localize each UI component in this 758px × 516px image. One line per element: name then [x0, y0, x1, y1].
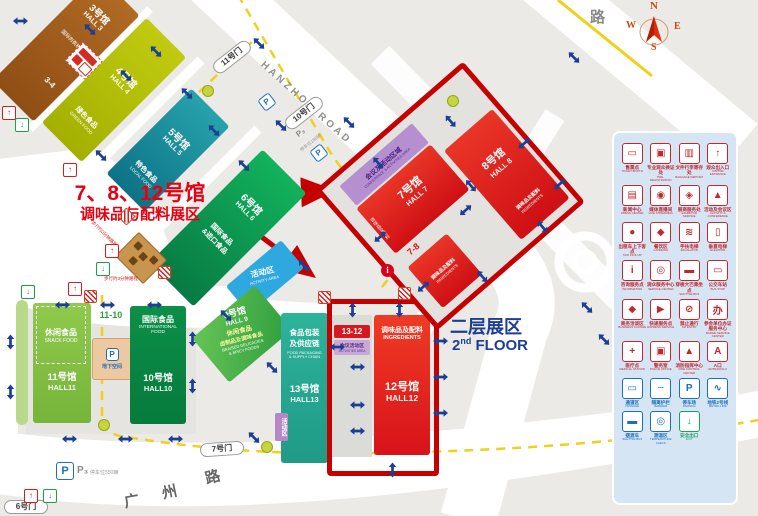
legend-glyph-icon: ◆: [650, 222, 671, 243]
legend-glyph-icon: ●: [622, 222, 643, 243]
legend-item-20: 办参会单位办证服务中心BADGE SERVICE CENTER: [704, 299, 733, 338]
legend-glyph-icon: ▭: [622, 143, 643, 164]
entrance-arrow-icon: [330, 338, 345, 346]
legend-glyph-icon: ▣: [650, 341, 671, 362]
escalator-icon: [318, 291, 331, 304]
legend-item-10: ◆餐饮区CATERING: [647, 222, 676, 258]
entrance-arrow-icon: [350, 422, 365, 430]
parking-p3-bottom: P₃: [77, 465, 88, 476]
hall-11-sub-en: SNACK FOOD: [44, 338, 77, 344]
parking-p-icon: P: [106, 348, 119, 361]
legend-item-11: ≋手扶电梯ESCALATOR: [675, 222, 704, 258]
entrance-arrow-icon: [354, 303, 362, 318]
entrance-arrow-icon: [369, 225, 386, 241]
entrance-arrow-icon: [350, 358, 365, 366]
entrance-arrow-icon: [168, 430, 183, 438]
legend-glyph-icon: ≋: [679, 222, 700, 243]
entrance-arrow-icon: [62, 430, 77, 438]
legend-item-12: ▯垂直电梯ELEVATOR: [704, 222, 733, 258]
walk-note-2: 步行约3分钟路程: [104, 276, 138, 282]
legend-glyph-icon: ↓: [679, 411, 700, 432]
tree-strip: [16, 300, 28, 425]
exit-marker-icon: ↑: [24, 489, 38, 503]
legend-item-14: ◎观众服务中心SERVICE CENTER: [647, 260, 676, 296]
floor-note-en: 2nd FLOOR: [452, 336, 528, 354]
legend-glyph-icon: ▣: [650, 143, 671, 164]
link-11-10: 11-10: [94, 307, 128, 323]
entrance-arrow-icon: [433, 404, 448, 412]
entrance-arrow-icon: [401, 303, 409, 318]
legend-item-21: +医疗点MEDICAL STATION: [618, 341, 647, 375]
entrance-arrow-icon: [12, 385, 20, 400]
entrance-marker-icon: ↓: [43, 489, 57, 503]
entrance-arrow-icon: [194, 332, 202, 347]
legend-glyph-icon: ▶: [650, 299, 671, 320]
legend-item-19: ⊘禁止通行NO ENTRY: [675, 299, 704, 338]
legend-glyph-icon: ▲: [679, 341, 700, 362]
hall-11-hallno: HALL11: [48, 383, 76, 392]
exit-marker-icon: ↑: [68, 282, 82, 296]
hall-10-sub: 国际食品: [142, 314, 174, 325]
legend-glyph-icon: 办: [707, 299, 728, 320]
legend-item-5: ▤新闻中心PRESS CENTER: [618, 185, 647, 219]
legend-glyph-icon: ▬: [622, 411, 643, 432]
legend-glyph-icon: ▤: [622, 185, 643, 206]
hall-11: 休闲食品 SNACK FOOD 11号馆 HALL11: [33, 303, 91, 423]
legend-item-3: ▥文件行李寄存处BAGGAGE DEPOSIT: [675, 143, 704, 182]
hall-13-name: 13号馆: [290, 385, 320, 395]
entrance-arrow-icon: [433, 368, 448, 376]
road-node-dot: [202, 85, 214, 97]
entrance-arrow-icon: [412, 275, 429, 291]
hall-13-sub2: 及供应链: [290, 338, 320, 349]
entrance-arrow-icon: [147, 296, 162, 304]
compass-n: N: [650, 0, 658, 12]
legend-item-16: ▭公交车站BUS STOP: [704, 260, 733, 296]
compass-w: W: [626, 20, 636, 31]
legend-item-13: i咨询服务点INFORMATION: [618, 260, 647, 296]
legend-glyph-icon: ⊘: [679, 299, 700, 320]
legend-item-6: ◉媒体直播间LIVE STREAMING: [647, 185, 676, 219]
legend-glyph-icon: ▲: [707, 185, 728, 206]
venue-map: 3号馆 HALL 3 国际肉类机械 3-4 4号馆 HALL 4 绿色食品 GR…: [0, 0, 758, 516]
escalator-icon: [398, 287, 411, 300]
entrance-arrow-icon: [538, 215, 554, 232]
escalator-icon: [158, 266, 171, 279]
hall-13: 食品包装 及供应链 FOOD PACKAGING & SUPPLY CHAIN …: [281, 313, 328, 463]
legend-glyph-icon: ◎: [650, 411, 671, 432]
entrance-arrow-icon: [12, 335, 20, 350]
legend-item-28: ∿地铁2号线METRO LINE: [704, 378, 733, 408]
underground-space-box: P 地下空间: [92, 338, 132, 380]
legend-glyph-icon: ▭: [707, 260, 728, 281]
hall-13-sub: 食品包装: [290, 327, 320, 338]
entrance-marker-icon: ↓: [96, 262, 110, 276]
legend-item-29: ▬摆渡车SHUTTLE BUS: [618, 411, 647, 445]
legend-item-27: P停车场PARKING: [675, 378, 704, 408]
info-point-icon: i: [381, 264, 394, 277]
legend-glyph-icon: i: [622, 260, 643, 281]
entrance-marker-icon: ↓: [21, 285, 35, 299]
road-node-dot: [98, 419, 110, 431]
legend-glyph-icon: ↑: [707, 143, 728, 164]
hall-10-hallno: HALL10: [144, 384, 172, 393]
highlight-subtitle: 调味品与配料展区: [60, 203, 220, 224]
parking-note-bottom: 停车位550辆: [90, 469, 118, 476]
hall-10-name: 10号馆: [143, 374, 173, 384]
entrance-arrow-icon: [13, 12, 28, 20]
entrance-marker-icon: ↓: [15, 118, 29, 132]
legend-glyph-icon: ▥: [679, 143, 700, 164]
legend-grid: ▭售票点TICKET BOOTH▣专业观众换证处PRE-REGISTRATION…: [614, 133, 736, 449]
compass-e: E: [674, 21, 681, 32]
legend-item-15: ▬穿梭大巴乘坐点SHUTTLE BUS: [675, 260, 704, 296]
escalator-icon: [84, 290, 97, 303]
entrance-arrow-icon: [513, 132, 530, 148]
hall-13-hallno: HALL13: [290, 395, 318, 404]
activity-area-purple-tag: 活动区: [275, 413, 288, 441]
road-lu: 路: [590, 6, 605, 27]
entrance-arrow-icon: [478, 265, 494, 282]
exit-marker-icon: ↑: [63, 163, 77, 177]
road-node-dot: [447, 95, 459, 107]
underground-space-label: 地下空间: [102, 363, 122, 370]
hall-11-name: 11号馆: [47, 373, 76, 383]
legend-item-26: ┄隔离护栏BARRIER: [647, 378, 676, 408]
hall-11-sub: 休闲食品: [45, 327, 77, 338]
legend-item-31: ↓安全出口EXIT: [675, 411, 704, 445]
legend-item-24: AA口ENTRANCE A: [704, 341, 733, 375]
legend-item-23: ▲消防指挥中心FIRE CONTROL CENTER: [675, 341, 704, 375]
legend-glyph-icon: ◎: [650, 260, 671, 281]
highlight-frame-12: [327, 299, 439, 476]
legend-panel: ▭售票点TICKET BOOTH▣专业观众换证处PRE-REGISTRATION…: [612, 131, 738, 505]
entrance-arrow-icon: [194, 379, 202, 394]
legend-glyph-icon: A: [707, 341, 728, 362]
compass-s: S: [651, 42, 657, 53]
compass: N W E S: [624, 2, 684, 60]
legend-glyph-icon: ◆: [622, 299, 643, 320]
legend-item-4: ↑观众出入口VISITOR ENTRANCE: [704, 143, 733, 182]
legend-glyph-icon: ∿: [707, 378, 728, 399]
entrance-arrow-icon: [350, 396, 365, 404]
legend-glyph-icon: ◈: [679, 185, 700, 206]
hall-13-sub-en2: & SUPPLY CHAIN: [289, 355, 320, 359]
entrance-arrow-icon: [55, 296, 70, 304]
legend-item-1: ▭售票点TICKET BOOTH: [618, 143, 647, 182]
legend-item-17: ◆商务洽谈区BUSINESS LOUNGE: [618, 299, 647, 338]
entrance-arrow-icon: [548, 172, 565, 188]
legend-glyph-icon: ┄: [650, 378, 671, 399]
legend-glyph-icon: ◉: [650, 185, 671, 206]
legend-item-8: ▲活动及会议区ACTIVITY & CONFERENCE: [704, 185, 733, 219]
hall-10: 国际食品 INTERNATIONAL FOOD 10号馆 HALL10: [130, 306, 186, 424]
parking-icon-bottom: P: [56, 462, 74, 480]
exit-marker-icon: ↑: [2, 106, 16, 120]
legend-item-25: ▭通道区PASSAGE: [618, 378, 647, 408]
legend-glyph-icon: ▯: [707, 222, 728, 243]
road-node-dot: [261, 441, 273, 453]
legend-item-2: ▣专业观众换证处PRE-REGISTRATION: [647, 143, 676, 182]
legend-item-18: ▶快递服务点EXPRESS SERVICE: [647, 299, 676, 338]
exit-marker-icon: ↑: [105, 244, 119, 258]
legend-item-9: ●出租车上下客点TAXI PICK-UP: [618, 222, 647, 258]
entrance-arrow-icon: [100, 296, 115, 304]
entrance-arrow-icon: [433, 332, 448, 340]
legend-item-30: ◎测温区TEMPERATURE CHECK: [647, 411, 676, 445]
entrance-arrow-icon: [446, 110, 462, 127]
entrance-arrow-icon: [118, 430, 133, 438]
legend-item-7: ◈展商服务处EXHIBITOR SERVICE: [675, 185, 704, 219]
entrance-arrow-icon: [394, 463, 402, 478]
legend-item-22: ▣警务室POLICE OFFICE: [647, 341, 676, 375]
legend-glyph-icon: ▭: [622, 378, 643, 399]
legend-glyph-icon: ▬: [679, 260, 700, 281]
hall-10-sub-en2: FOOD: [151, 330, 165, 335]
legend-glyph-icon: +: [622, 341, 643, 362]
legend-glyph-icon: P: [679, 378, 700, 399]
